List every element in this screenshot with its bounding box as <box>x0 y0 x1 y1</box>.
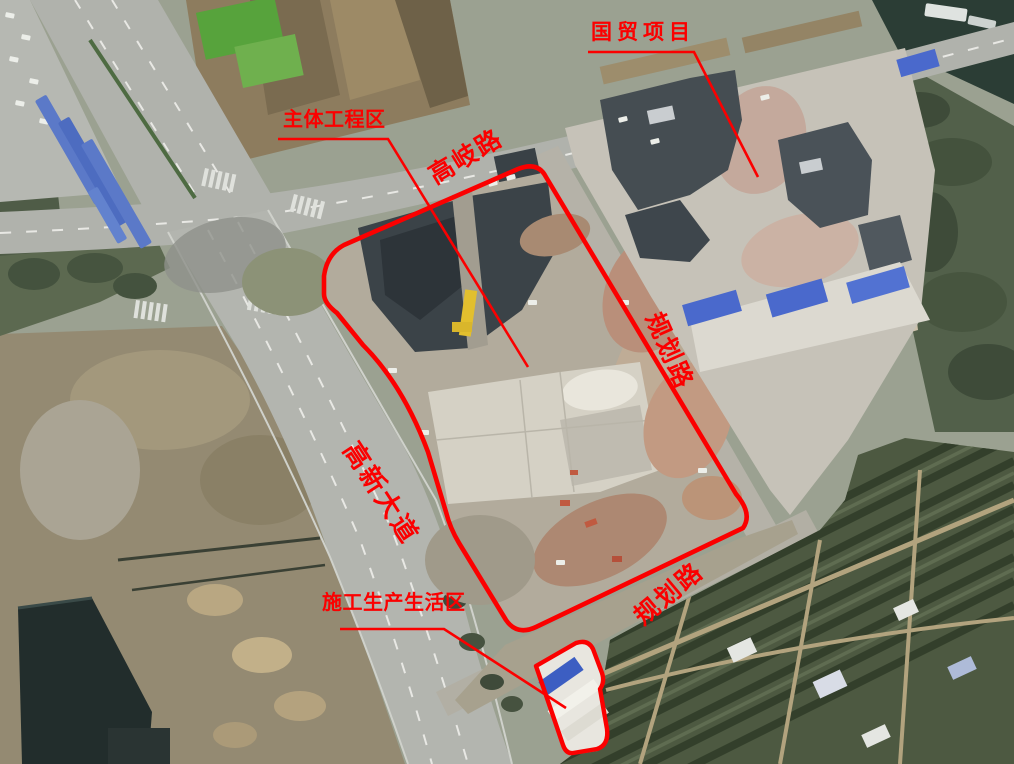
label-construction-living-area: 施工生产生活区 <box>322 592 466 613</box>
label-main-works-area: 主体工程区 <box>283 109 386 130</box>
label-guomao-project: 国贸项目 <box>591 21 695 43</box>
satellite-map: 国贸项目 主体工程区 高岐路 规划路 高新大道 规划路 施工生产生活区 <box>0 0 1014 764</box>
rough-patch <box>242 248 334 316</box>
satellite-background <box>0 0 1014 764</box>
